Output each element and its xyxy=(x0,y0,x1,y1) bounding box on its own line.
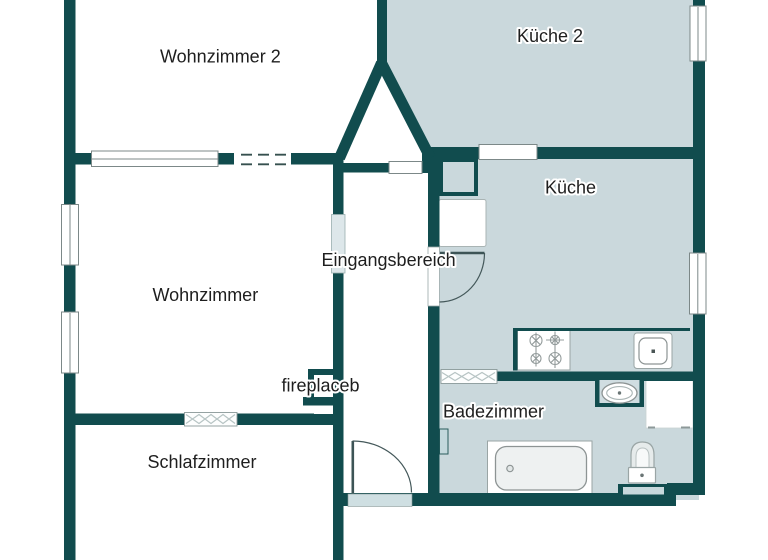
svg-text:Badezimmer: Badezimmer xyxy=(443,402,544,422)
svg-text:fireplaceb: fireplaceb xyxy=(282,376,360,396)
svg-text:Wohnzimmer 2: Wohnzimmer 2 xyxy=(160,47,281,67)
svg-text:Küche: Küche xyxy=(545,178,596,198)
svg-text:Wohnzimmer: Wohnzimmer xyxy=(153,285,259,305)
svg-text:Schlafzimmer: Schlafzimmer xyxy=(148,452,257,472)
svg-text:Eingangsbereich: Eingangsbereich xyxy=(322,250,456,270)
svg-text:Küche 2: Küche 2 xyxy=(517,26,583,46)
